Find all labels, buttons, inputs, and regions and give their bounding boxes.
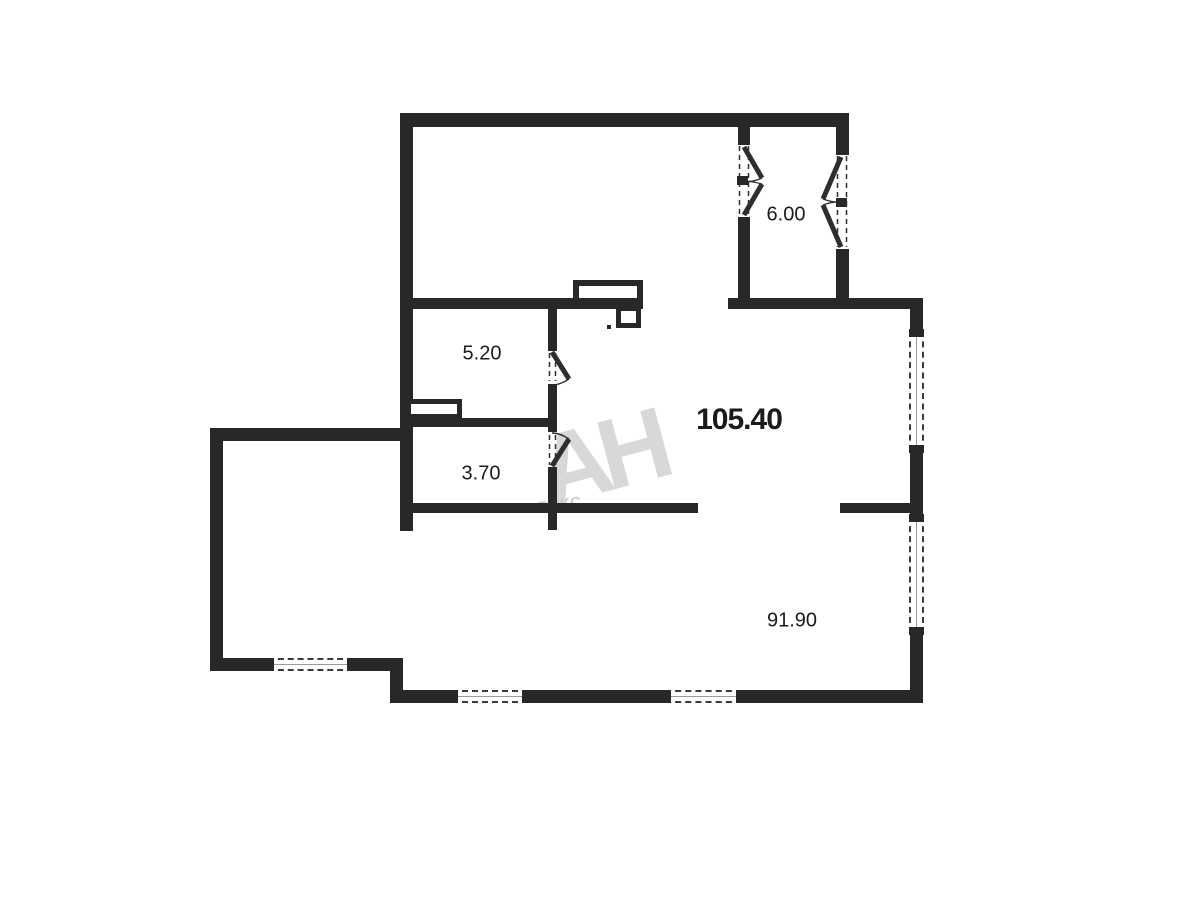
window-cap	[266, 658, 274, 671]
small-shaft-box	[616, 306, 641, 328]
window-right-upper	[909, 331, 924, 451]
floor-plan-canvas: АН РИКС	[0, 0, 1188, 920]
wall-balcony-right-lower	[836, 249, 849, 298]
room-area-label-main: 91.90	[767, 610, 817, 633]
wall-wc-right-seg2	[548, 384, 557, 432]
niche-box	[406, 399, 462, 419]
wall-balcony-partition-upper	[738, 127, 750, 145]
wall-interior-lower-right	[840, 503, 910, 513]
window-left-section	[268, 658, 353, 671]
window-cap	[909, 514, 924, 522]
french-door-balcony-left	[737, 146, 762, 216]
window-bottom-left	[452, 690, 528, 703]
wall-left-section-left	[210, 428, 223, 671]
window-bottom-right	[665, 690, 742, 703]
wall-mid-horizontal-right	[728, 298, 922, 309]
room-area-label-bathroom: 5.20	[463, 343, 502, 366]
wall-left-section-top	[210, 428, 413, 441]
wall-wc-right-seg1	[548, 309, 557, 351]
french-window-balcony-right	[823, 156, 847, 247]
room-area-label-balcony: 6.00	[767, 204, 806, 227]
duct-shaft-box	[573, 280, 643, 304]
window-cap	[663, 690, 671, 703]
wall-interior-lower-left	[400, 503, 698, 513]
window-right-lower	[909, 516, 924, 633]
window-cap	[736, 690, 744, 703]
door-bathroom	[550, 352, 570, 385]
window-cap	[522, 690, 530, 703]
window-cap	[909, 329, 924, 337]
wall-balcony-partition-lower	[738, 217, 750, 300]
window-cap	[450, 690, 458, 703]
window-cap	[909, 627, 924, 635]
total-area-label: 105.40	[696, 403, 782, 437]
room-area-label-wc: 3.70	[462, 463, 501, 486]
mark-dot	[607, 325, 611, 329]
wall-balcony-right-upper	[836, 113, 849, 155]
wall-wc-right-seg3	[548, 467, 557, 530]
window-cap	[347, 658, 355, 671]
window-cap	[909, 445, 924, 453]
wall-exterior-left-upper	[400, 113, 413, 531]
wall-exterior-top	[400, 113, 848, 127]
wall-bathroom-wc-divider	[400, 418, 557, 427]
